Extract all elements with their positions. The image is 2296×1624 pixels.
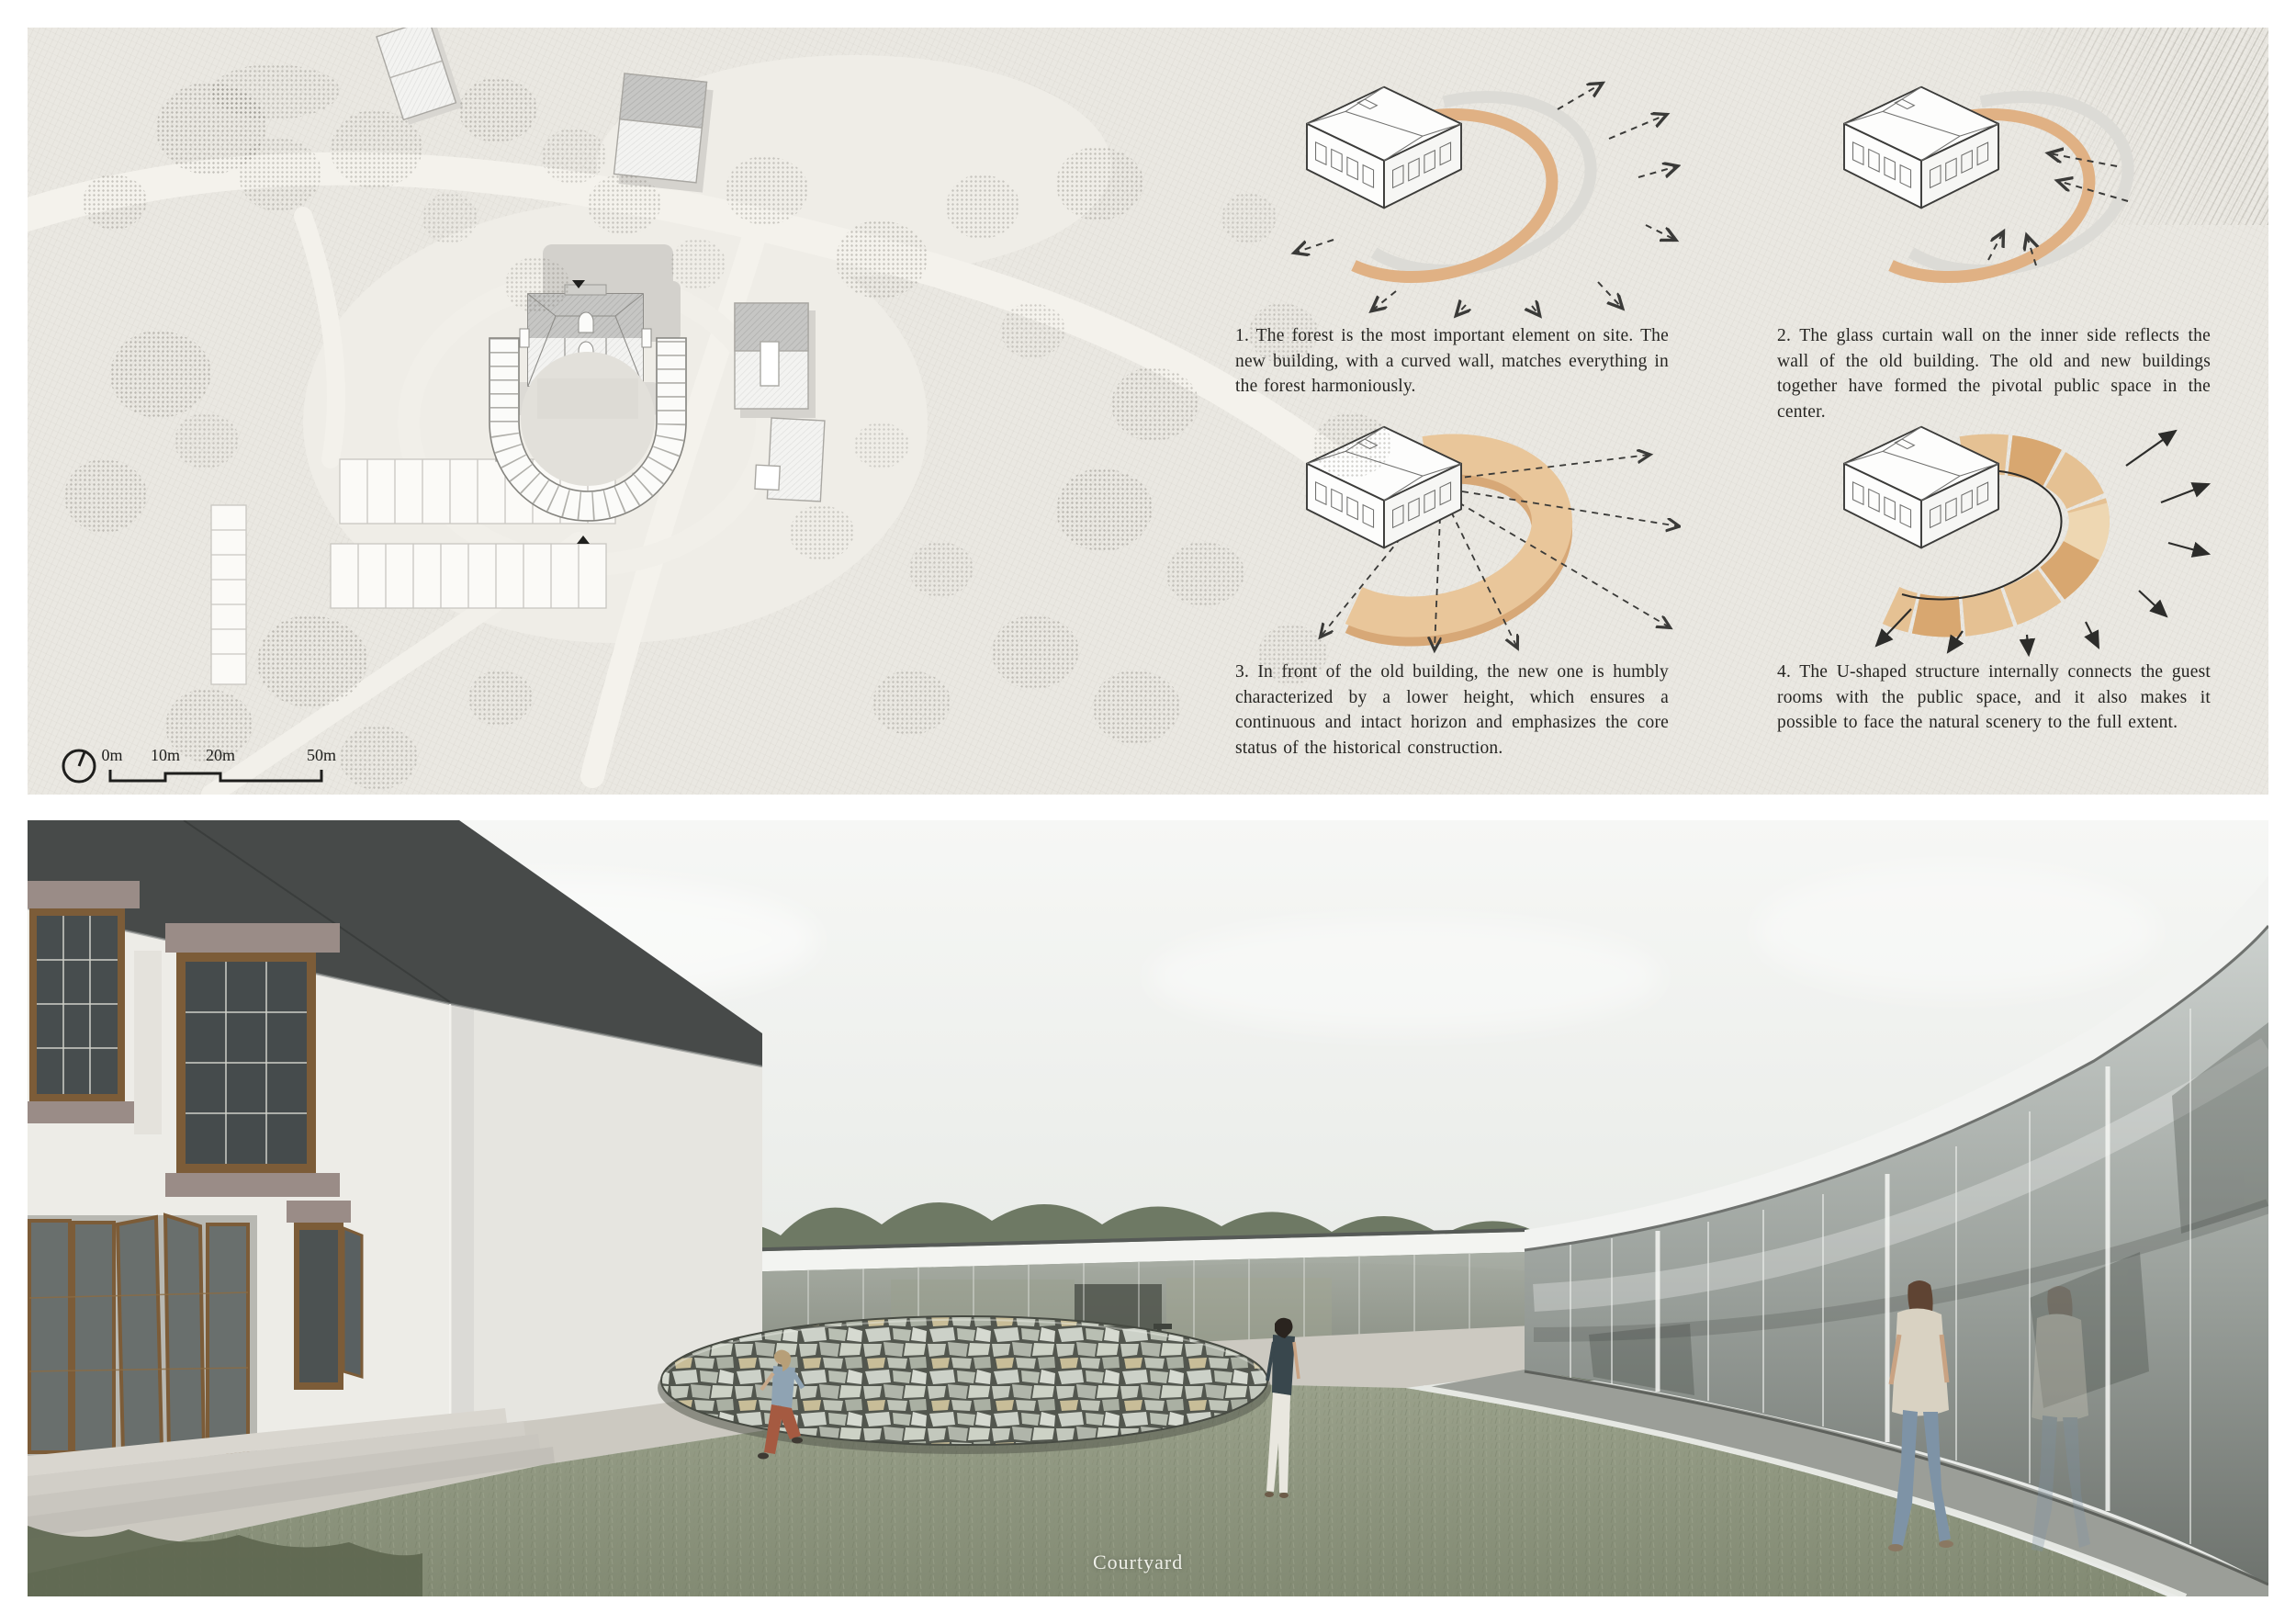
- scale-label-0m: 0m: [101, 746, 122, 764]
- caption-4: 4. The U-shaped structure internally con…: [1777, 660, 2211, 736]
- diagram-2-graphic: [1823, 78, 2218, 326]
- courtyard-label: Courtyard: [1093, 1551, 1183, 1574]
- presentation-board: 0m 10m 20m 50m: [0, 0, 2296, 1624]
- caption-2: 2. The glass curtain wall on the inner s…: [1777, 323, 2211, 425]
- concept-board-panel: 0m 10m 20m 50m: [28, 28, 2268, 795]
- scale-bar: [110, 770, 321, 781]
- diagram-1-graphic: [1286, 78, 1681, 326]
- north-compass-icon: [63, 750, 95, 782]
- stone-circle: [658, 1316, 1271, 1454]
- courtyard-render: [28, 820, 2268, 1596]
- diagram-4-graphic: [1823, 418, 2218, 666]
- old-building-axon: [1307, 87, 1461, 209]
- window-upper-left: [28, 881, 140, 1123]
- diagram-1: [1286, 78, 1681, 326]
- courtyard-render-panel: Courtyard: [28, 820, 2268, 1596]
- diagram-4: [1823, 418, 2218, 666]
- diagram-2: [1823, 78, 2218, 326]
- pilaster: [134, 951, 162, 1134]
- old-building-axon: [1844, 87, 1998, 209]
- window-upper-right: [165, 923, 340, 1197]
- folding-doors: [28, 1215, 257, 1456]
- scale-label-50m: 50m: [307, 746, 336, 764]
